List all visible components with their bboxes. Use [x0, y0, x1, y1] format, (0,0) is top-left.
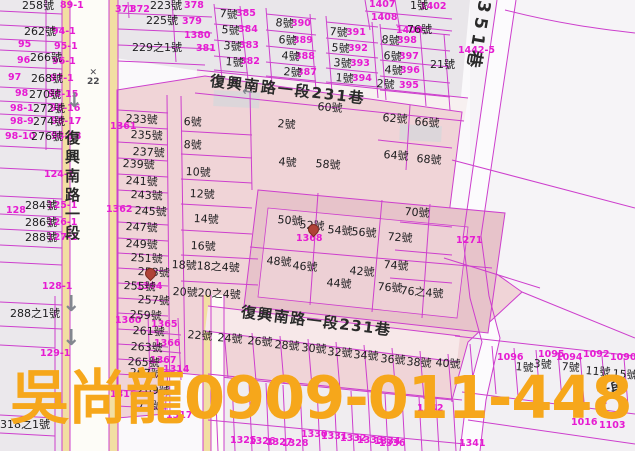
house-number-label: 261號 [132, 325, 165, 338]
house-number-label: 239號 [122, 158, 155, 171]
house-number-label: 1號 [225, 56, 244, 69]
house-number-label: 8號 [381, 34, 400, 47]
lot-number-label: 1407 [369, 0, 395, 10]
lot-number-label: 1328 [282, 439, 308, 449]
road-direction-arrow-icon: ↓ [62, 328, 80, 350]
lot-number-label: 381 [196, 44, 216, 54]
house-number-label: 241號 [125, 175, 158, 188]
house-number-label: 20號20之4號 [172, 286, 240, 301]
lot-number-label: 394 [352, 74, 372, 84]
house-number-label: 74號 [383, 259, 409, 272]
house-number-label: 225號 [146, 15, 178, 26]
house-number-label: 243號 [130, 189, 163, 202]
lot-number-label: 1092 [583, 350, 609, 360]
house-number-label: 1號 [410, 0, 428, 11]
house-number-label: 266號 [30, 52, 62, 63]
lot-number-label: 395 [399, 81, 419, 91]
house-number-label: 58號 [315, 158, 341, 171]
house-number-label: 64號 [383, 149, 409, 162]
house-number-label: 56號 [351, 226, 377, 239]
lot-number-label: 384 [238, 25, 258, 35]
house-number-label: 30號 [301, 342, 327, 355]
house-number-label: 76之4號 [400, 285, 444, 300]
house-number-label: 4號 [281, 50, 300, 63]
lot-number-label: 1090 [610, 353, 635, 363]
house-number-label: 6號 [383, 50, 402, 63]
house-number-label: 22號 [187, 329, 213, 342]
house-number-label: 62號 [382, 112, 408, 125]
house-number-label: 263號 [130, 341, 163, 354]
lot-number-label: 393 [350, 59, 370, 69]
house-number-label: 4號 [278, 156, 297, 169]
house-number-label: 46號 [292, 260, 318, 273]
lot-number-label: 392 [348, 44, 368, 54]
house-number-label: 8號 [275, 17, 294, 30]
house-number-label: 245號 [134, 205, 167, 218]
lot-number-label: 96 [17, 56, 30, 66]
lot-number-label: 1341 [459, 439, 485, 449]
lot-number-label: 97 [8, 73, 21, 83]
house-number-label: 2號 [283, 66, 302, 79]
house-number-label: 2號 [376, 78, 395, 91]
street-name-label: 351巷 [463, 0, 492, 73]
lot-number-label: 379 [182, 17, 202, 27]
cadastral-map[interactable]: 89-194-19595-19696-19797-19898-1598-198-… [0, 0, 635, 451]
house-number-label: 255號 [123, 280, 156, 293]
house-number-label: 76號 [377, 281, 403, 294]
lot-number-label: 378 [184, 1, 204, 11]
house-number-label: 14號 [193, 213, 219, 225]
house-number-label: 259號 [129, 309, 162, 322]
road-direction-arrow-icon: ↓ [66, 90, 83, 110]
lot-number-label: 1380 [184, 31, 210, 41]
survey-station-icon: ✕22 [87, 69, 100, 87]
house-number-label: 24號 [217, 332, 243, 345]
house-number-label: 3號 [223, 40, 242, 53]
lot-number-label: 385 [236, 9, 256, 19]
house-number-label: 223號 [150, 0, 182, 11]
house-number-label: 34號 [353, 349, 379, 362]
agent-watermark: 吳尚龍0909-011-448 [10, 366, 632, 431]
house-number-label: 18號18之4號 [171, 259, 239, 274]
house-number-label: 68號 [416, 153, 442, 166]
house-number-label: 76號 [407, 24, 432, 35]
house-number-label: 288之1號 [10, 308, 60, 319]
lot-number-label: 1368 [296, 234, 322, 244]
road-direction-arrow-icon: ← [241, 85, 253, 99]
lot-number-label: 1362 [106, 205, 132, 215]
house-number-label: 3號 [333, 57, 352, 70]
house-number-label: 21號 [430, 59, 455, 70]
house-number-label: 26號 [247, 335, 273, 348]
house-number-label: 286號 [25, 217, 57, 228]
house-number-label: 16號 [190, 240, 216, 252]
lot-number-label: 1334 [374, 437, 400, 447]
lot-number-label: 1271 [456, 236, 482, 246]
house-number-label: 5號 [331, 42, 350, 55]
house-number-label: 284號 [25, 200, 57, 211]
lot-number-label: 1408 [371, 13, 397, 23]
lot-number-label: 98 [15, 89, 28, 99]
house-number-label: 272號 [33, 103, 65, 114]
house-number-label: 233號 [125, 113, 158, 126]
house-number-label: 54號 [327, 224, 353, 237]
house-number-label: 288號 [25, 232, 57, 243]
house-number-label: 70號 [404, 206, 430, 219]
street-name-label: 復興南路一段231巷 [240, 305, 392, 338]
street-name-label: 復興南路一段 [64, 130, 79, 244]
house-number-label: 247號 [125, 221, 158, 234]
house-number-label: 44號 [326, 277, 352, 290]
lot-number-label: 98-1 [10, 104, 34, 114]
house-number-label: 28號 [274, 339, 300, 352]
lot-number-label: 383 [239, 41, 259, 51]
house-number-label: 270號 [29, 89, 61, 100]
house-number-label: 268號 [31, 73, 63, 84]
house-number-label: 274號 [33, 116, 65, 127]
house-number-label: 7號 [219, 8, 238, 21]
house-number-label: 249號 [125, 238, 158, 251]
house-number-label: 5號 [221, 24, 240, 37]
house-number-label: 12號 [189, 188, 215, 200]
lot-number-label: 128-1 [42, 282, 72, 292]
lot-number-label: 89-1 [60, 1, 84, 11]
house-number-label: 66號 [414, 116, 440, 129]
house-number-label: 257號 [137, 294, 170, 307]
house-number-label: 262號 [24, 26, 56, 37]
house-number-label: 7號 [329, 26, 348, 39]
house-number-label: 10號 [185, 166, 211, 178]
house-number-label: 258號 [22, 0, 54, 11]
house-number-label: 32號 [327, 346, 353, 359]
lot-number-label: 128 [6, 206, 26, 216]
house-number-label: 229之1號 [132, 42, 182, 53]
house-number-label: 48號 [266, 255, 292, 268]
house-number-label: 235號 [130, 129, 163, 142]
lot-number-label: 98-9 [10, 117, 34, 127]
lot-number-label: 95 [18, 40, 31, 50]
lot-number-label: 391 [346, 28, 366, 38]
house-number-label: 2號 [277, 118, 296, 131]
house-number-label: 276號 [31, 131, 63, 142]
lot-number-label: 397 [399, 52, 419, 62]
house-number-label: 1號 [335, 72, 354, 85]
lot-number-label: 398 [397, 36, 417, 46]
house-number-label: 42號 [349, 265, 375, 278]
lot-number-label: 390 [291, 19, 311, 29]
house-number-label: 6號 [183, 116, 202, 128]
house-number-label: 8號 [183, 139, 202, 151]
lot-number-label: 396 [400, 66, 420, 76]
house-number-label: 251號 [130, 252, 163, 265]
house-number-label: 4號 [384, 64, 403, 77]
road-direction-arrow-icon: ↓ [62, 294, 80, 316]
house-number-label: 72號 [387, 231, 413, 244]
house-number-label: 6號 [278, 34, 297, 47]
